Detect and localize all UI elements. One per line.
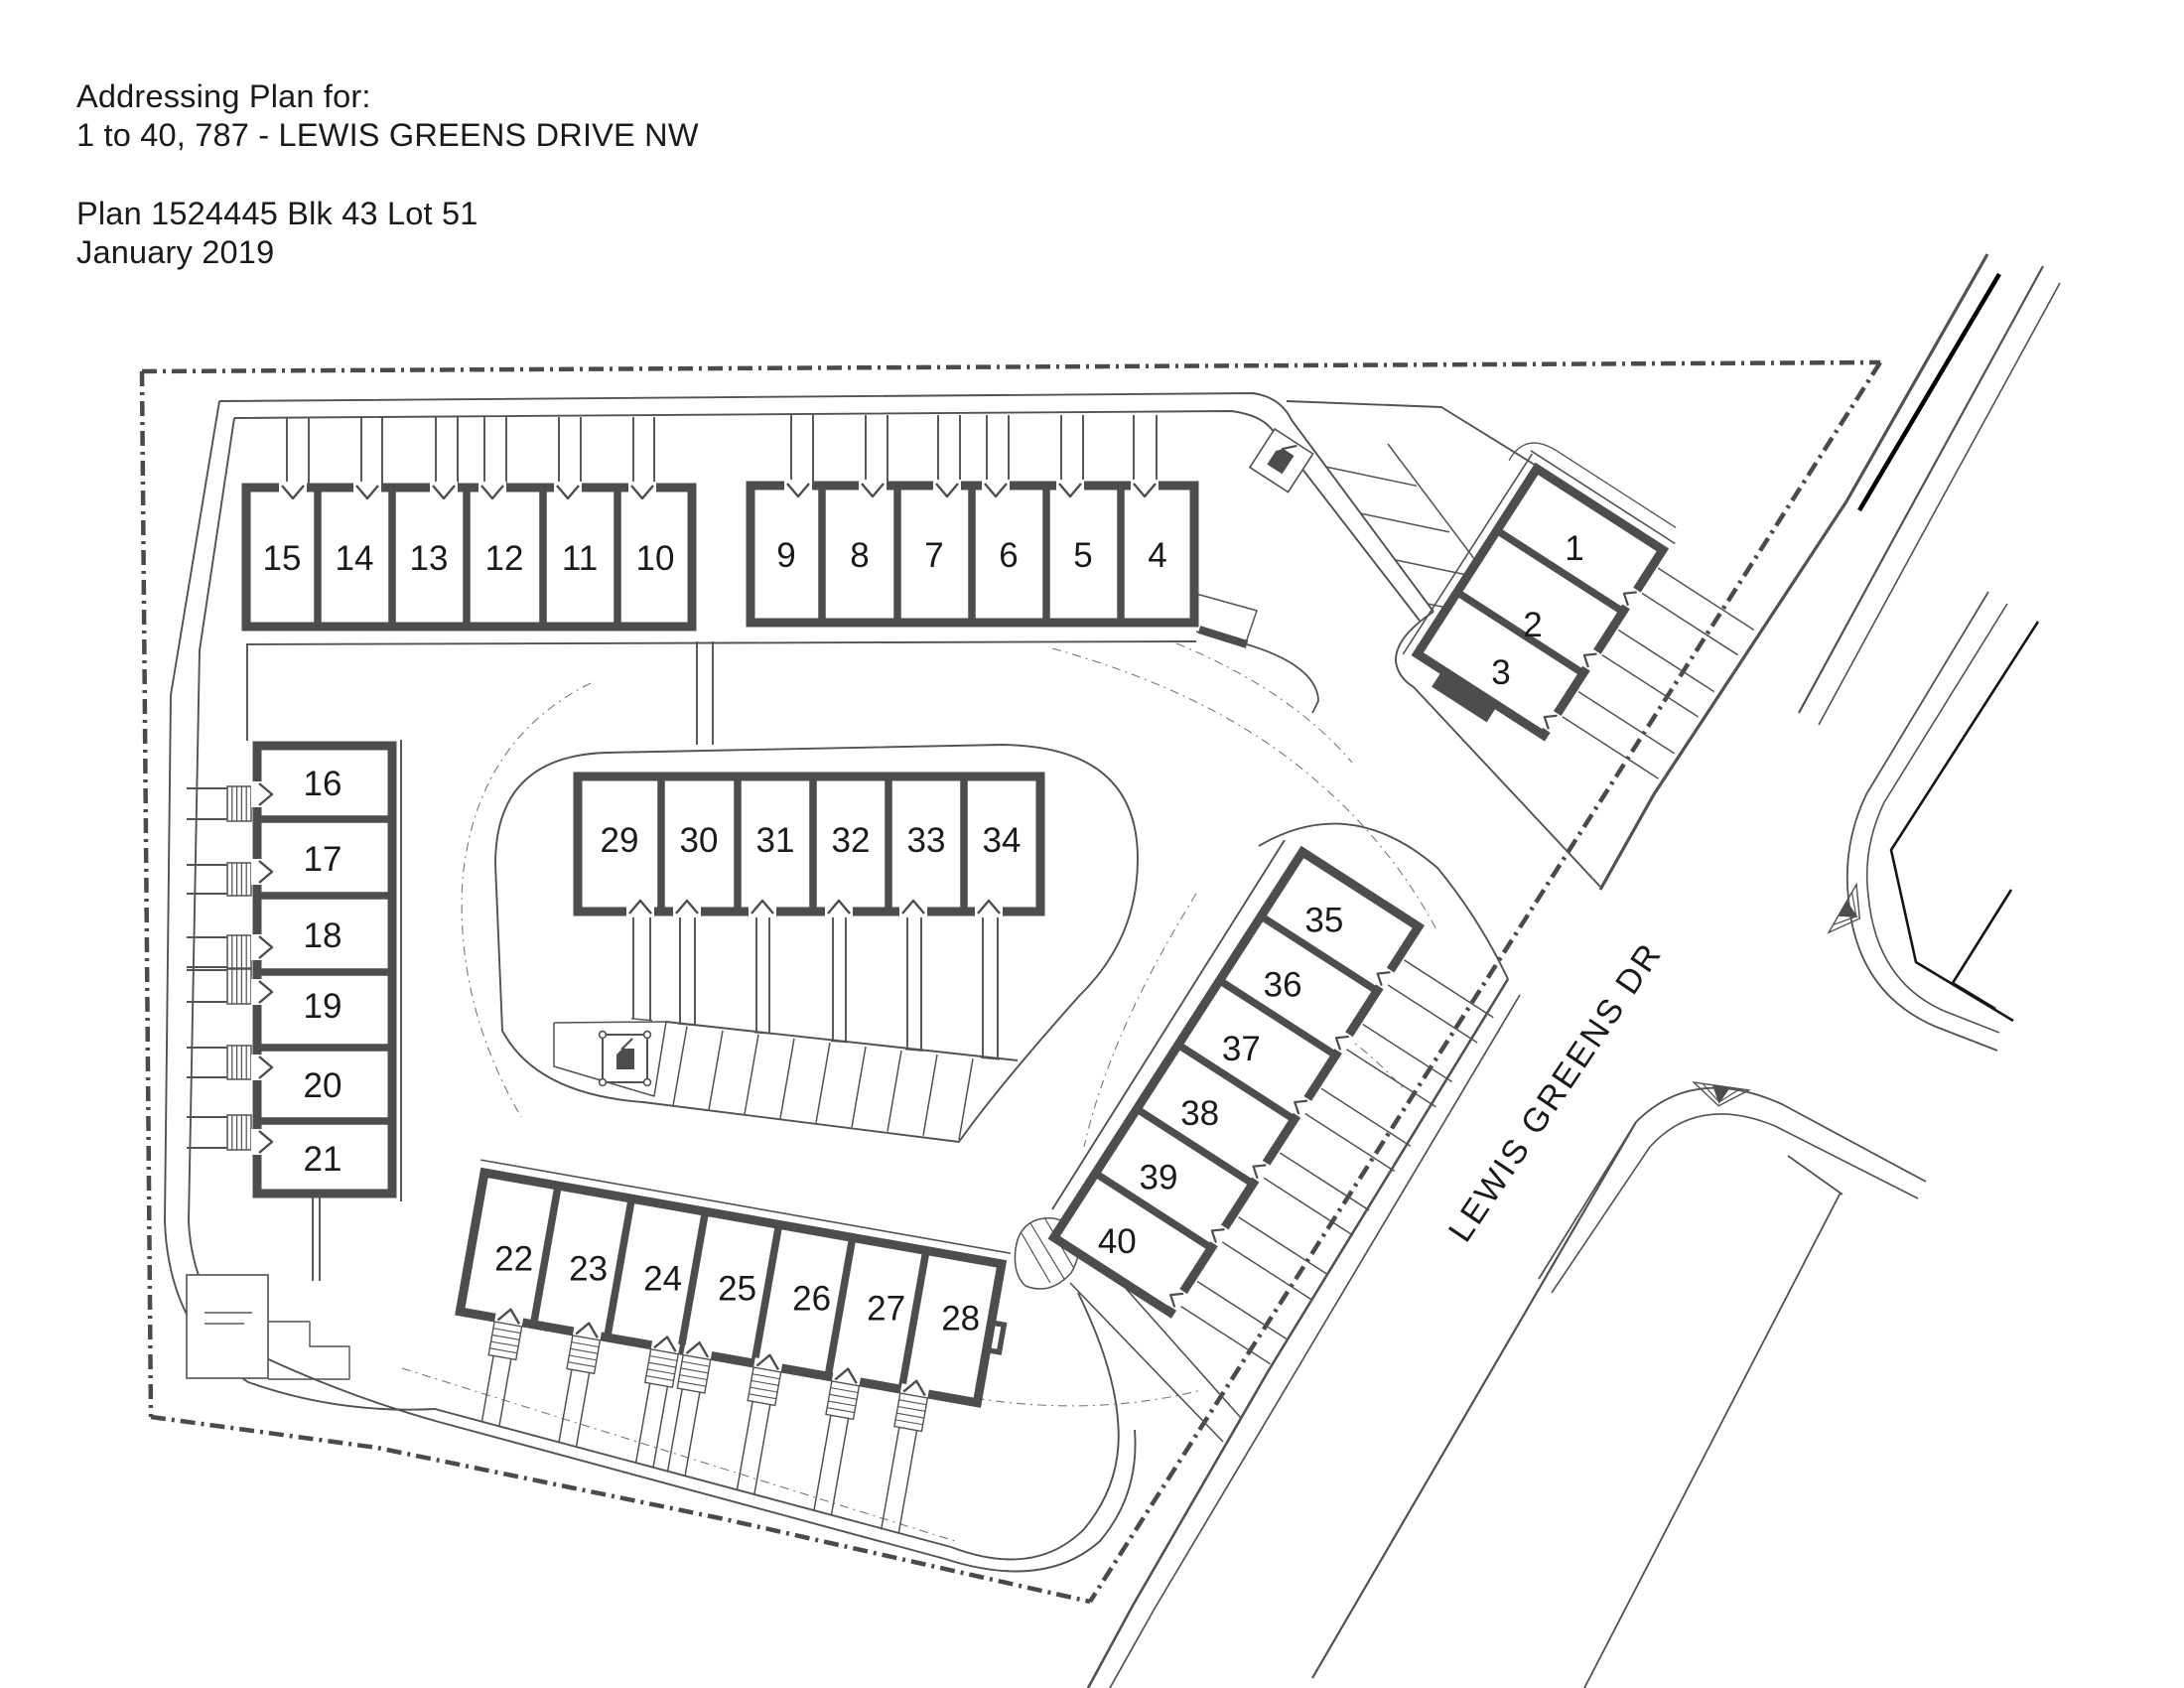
- svg-text:15: 15: [263, 539, 302, 578]
- svg-text:1 to 40, 787 - LEWIS GREENS DR: 1 to 40, 787 - LEWIS GREENS DRIVE NW: [76, 117, 699, 153]
- svg-text:26: 26: [792, 1279, 831, 1318]
- svg-text:29: 29: [601, 821, 639, 860]
- svg-text:8: 8: [850, 536, 869, 575]
- svg-text:39: 39: [1140, 1159, 1178, 1197]
- svg-text:25: 25: [718, 1269, 756, 1308]
- svg-text:5: 5: [1073, 536, 1092, 575]
- svg-text:33: 33: [907, 821, 946, 860]
- svg-text:11: 11: [562, 539, 598, 578]
- svg-text:1: 1: [1565, 529, 1583, 568]
- svg-text:36: 36: [1264, 965, 1302, 1004]
- svg-text:9: 9: [776, 536, 795, 575]
- svg-text:14: 14: [336, 539, 374, 578]
- svg-text:24: 24: [643, 1259, 682, 1298]
- svg-text:Plan 1524445 Blk 43 Lot 51: Plan 1524445 Blk 43 Lot 51: [76, 196, 478, 231]
- svg-text:31: 31: [756, 821, 795, 860]
- svg-text:38: 38: [1180, 1094, 1219, 1133]
- svg-text:21: 21: [304, 1140, 342, 1179]
- svg-text:13: 13: [410, 539, 449, 578]
- svg-text:30: 30: [680, 821, 719, 860]
- svg-text:23: 23: [569, 1249, 608, 1288]
- svg-text:27: 27: [867, 1289, 905, 1328]
- svg-text:37: 37: [1222, 1030, 1261, 1068]
- svg-text:12: 12: [485, 539, 524, 578]
- svg-text:28: 28: [941, 1299, 980, 1337]
- svg-text:35: 35: [1304, 902, 1343, 940]
- svg-text:20: 20: [304, 1066, 342, 1105]
- svg-text:10: 10: [636, 539, 675, 578]
- svg-text:40: 40: [1098, 1222, 1137, 1261]
- svg-text:4: 4: [1148, 536, 1166, 575]
- svg-text:17: 17: [304, 840, 342, 879]
- svg-text:22: 22: [494, 1239, 533, 1278]
- svg-text:7: 7: [924, 536, 943, 575]
- svg-text:18: 18: [304, 916, 342, 955]
- svg-text:19: 19: [304, 987, 342, 1026]
- svg-text:January 2019: January 2019: [76, 234, 274, 270]
- svg-text:32: 32: [832, 821, 871, 860]
- svg-text:Addressing Plan for:: Addressing Plan for:: [76, 78, 371, 114]
- svg-text:3: 3: [1491, 653, 1510, 692]
- svg-text:6: 6: [999, 536, 1018, 575]
- svg-text:16: 16: [304, 765, 342, 803]
- svg-text:34: 34: [983, 821, 1022, 860]
- svg-text:2: 2: [1523, 606, 1542, 644]
